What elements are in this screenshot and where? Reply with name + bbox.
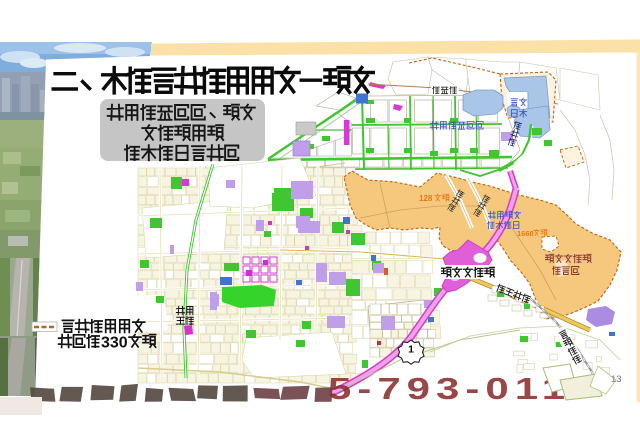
svg-text:13: 13 [611,374,622,385]
svg-text:330: 330 [101,335,128,352]
svg-text:1660: 1660 [517,229,534,238]
svg-text:128: 128 [419,194,433,203]
svg-text:5-793-011: 5-793-011 [328,372,571,406]
svg-text:1: 1 [408,344,414,356]
